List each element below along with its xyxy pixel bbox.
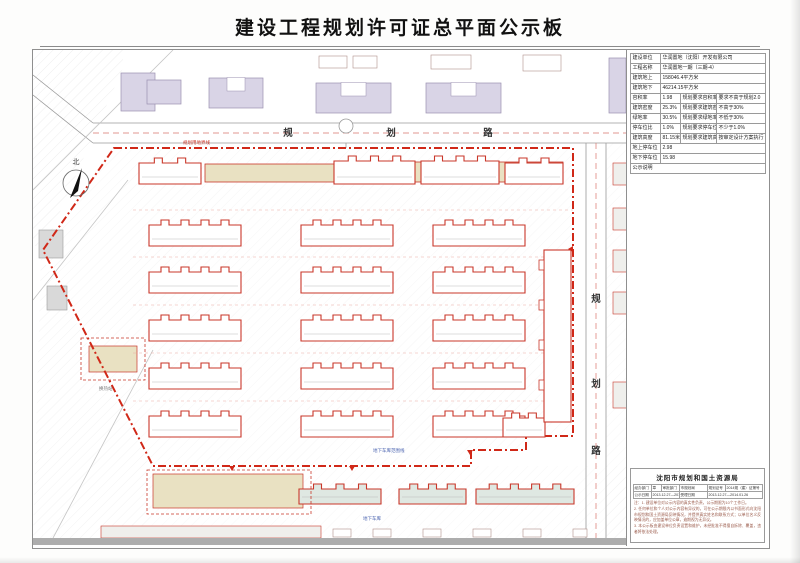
context-building (613, 208, 626, 230)
context-building-court (227, 78, 245, 92)
context-building-court (341, 83, 366, 97)
info-cell: 不低于30% (717, 114, 766, 124)
approval-block: 沈阳市规划和国土资源局 经办部门章审批部门市规划局规划证号2014规（建）证第号… (630, 468, 765, 543)
info-cell: 华润置地一期（三期-4） (661, 64, 766, 74)
title-rule (40, 46, 760, 47)
plan-label: 地下车库范围线 (373, 447, 405, 454)
podium (205, 164, 337, 182)
info-cell: 要求不高于规划2.0 (717, 94, 766, 104)
approval-cell: 规划证号 (707, 485, 725, 492)
context-building (353, 56, 377, 68)
info-cell: 规划要求建筑高度 (681, 134, 717, 144)
info-panel: 建设单位华润置地（沈阳）开发有限公司工程名称华润置地一期（三期-4）建筑地上15… (626, 50, 768, 546)
building-wing (539, 300, 544, 310)
info-cell: 工程名称 (631, 64, 661, 74)
north-label: 北 (73, 158, 80, 166)
context-building (333, 529, 351, 537)
approval-cell: 市规划局 (679, 485, 707, 492)
context-building (523, 55, 561, 71)
context-building (147, 80, 181, 104)
info-cell: 建设单位 (631, 54, 661, 64)
note-line: 3. 本公示板由建设单位负责设置和维护，未经批准不得擅自拆除、覆盖，违者将依法处… (634, 524, 761, 535)
context-building (523, 529, 541, 537)
info-cell: 华润置地（沈阳）开发有限公司 (661, 54, 766, 64)
note-line: 注：1. 建设单位对公示内容的真实性负责，公示期限为10个工作日。 (634, 501, 761, 506)
context-building (153, 474, 303, 508)
info-cell: 绿地率 (631, 114, 661, 124)
info-cell: 容积率 (631, 94, 661, 104)
info-cell: 30.5% (661, 114, 681, 124)
road-label: 规 (283, 127, 293, 139)
context-building (609, 58, 626, 113)
approval-notes: 注：1. 建设单位对公示内容的真实性负责，公示期限为10个工作日。2. 任何单位… (634, 501, 761, 535)
context-building (431, 55, 471, 69)
approval-cell: 经办部门 (633, 485, 651, 492)
note-line: 2. 任何单位和个人对公示内容有异议的，可在公示期限内以书面形式向沈阳市规划和国… (634, 507, 761, 523)
road-label: 路 (591, 445, 601, 457)
approval-table: 经办部门章审批部门市规划局规划证号2014规（建）证第号公示日期2013.12.… (633, 484, 763, 499)
info-cell: 公示说明 (631, 164, 766, 174)
info-cell: 地下停车位 (631, 154, 661, 164)
page-title: 建设工程规划许可证总平面公示板 (0, 13, 800, 40)
approval-authority: 沈阳市规划和国土资源局 (631, 472, 764, 482)
context-building (319, 56, 347, 68)
info-cell: 按审定设计方案执行 (717, 134, 766, 144)
context-building (373, 529, 391, 537)
info-cell: 1.0% (661, 124, 681, 134)
approval-cell: 章 (651, 485, 661, 492)
info-cell: 2.98 (661, 144, 766, 154)
approval-cell: 2014规（建）证第号 (725, 485, 762, 492)
context-building (613, 250, 626, 272)
site-plan: 规划用地界线地下车库范围线地下车库换热站 北 规 划 路 规 划 路 (33, 50, 626, 546)
roundabout (339, 119, 353, 148)
info-table: 建设单位华润置地（沈阳）开发有限公司工程名称华润置地一期（三期-4）建筑地上15… (630, 53, 766, 174)
info-cell: 46214.15平方米 (661, 84, 766, 94)
approval-cell: 2013.12.27—2014.01.26 (707, 492, 762, 499)
plan-label: 地下车库 (363, 515, 381, 522)
info-cell: 停车位比 (631, 124, 661, 134)
context-building (613, 163, 626, 185)
site-plan-svg: 规划用地界线地下车库范围线地下车库换热站 北 规 划 路 规 划 路 (33, 50, 626, 546)
context-building (89, 346, 137, 372)
approval-cell: 审批部门 (661, 485, 679, 492)
info-cell: 规划要求容积率 (681, 94, 717, 104)
info-cell: 不高于30% (717, 104, 766, 114)
road-label: 划 (591, 378, 601, 390)
context-building-court (451, 83, 476, 97)
building-wing (539, 380, 544, 390)
building (544, 250, 571, 422)
info-cell: 地上停车位 (631, 144, 661, 154)
info-cell: 建筑高度 (631, 134, 661, 144)
info-cell: 25.3% (661, 104, 681, 114)
info-cell: 规划要求建筑密度 (681, 104, 717, 114)
info-cell: 规划要求绿地率 (681, 114, 717, 124)
info-cell: 1.98 (661, 94, 681, 104)
context-building (573, 529, 587, 537)
context-building (613, 292, 626, 314)
approval-cell: 2013.12.27—2014.01.09 (651, 492, 679, 499)
road-label: 路 (483, 127, 493, 139)
context-building (39, 230, 63, 258)
road-label: 划 (386, 127, 396, 139)
info-cell: 建筑密度 (631, 104, 661, 114)
context-building (473, 529, 491, 537)
info-cell: 158046.4平方米 (661, 74, 766, 84)
context-building (613, 382, 626, 408)
road-label: 规 (591, 293, 601, 305)
info-cell: 15.98 (661, 154, 766, 164)
context-building (101, 526, 321, 538)
info-cell: 不少于1.0% (717, 124, 766, 134)
building-wing (539, 260, 544, 270)
notice-board-page: 建设工程规划许可证总平面公示板 (0, 0, 800, 563)
context-building (423, 529, 441, 537)
plan-label: 规划用地界线 (183, 139, 210, 146)
scan-shadow-bottom (0, 557, 800, 563)
bottom-road (33, 538, 626, 545)
approval-cell: 受理日期 (679, 492, 707, 499)
approval-cell: 公示日期 (633, 492, 651, 499)
info-cell: 建筑地上 (631, 74, 661, 84)
scan-shadow-right (790, 0, 800, 563)
plan-label: 换热站 (99, 385, 113, 392)
info-cell: 建筑地下 (631, 84, 661, 94)
building-wing (539, 340, 544, 350)
info-cell: 81.15米 (661, 134, 681, 144)
drawing-frame: 规划用地界线地下车库范围线地下车库换热站 北 规 划 路 规 划 路 (32, 49, 770, 549)
info-cell: 规划要求停车位比 (681, 124, 717, 134)
